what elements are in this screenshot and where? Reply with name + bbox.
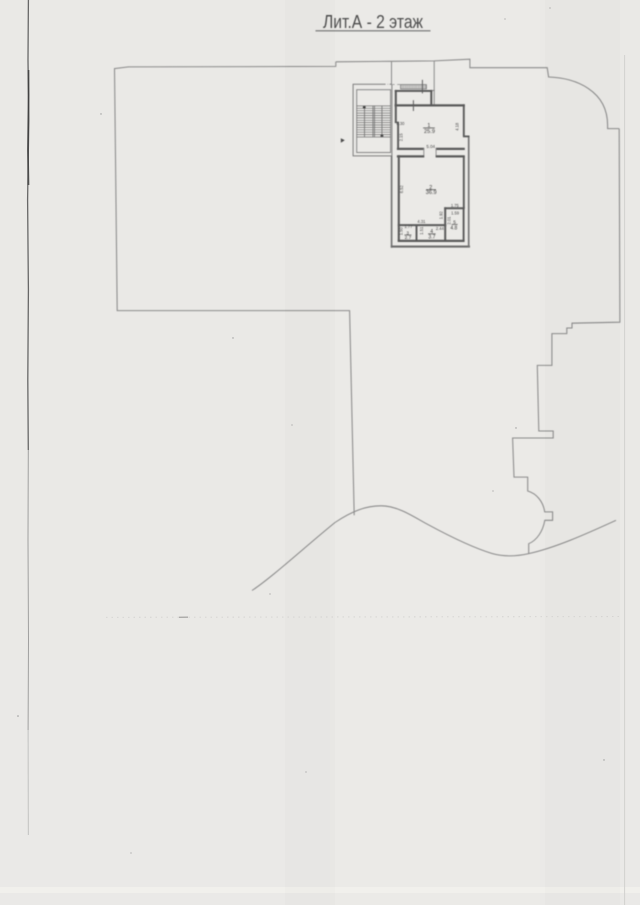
svg-text:3.7: 3.7 bbox=[428, 235, 435, 241]
svg-text:1.92: 1.92 bbox=[438, 211, 443, 220]
svg-text:0.30: 0.30 bbox=[396, 121, 405, 126]
svg-text:1.51: 1.51 bbox=[419, 226, 424, 235]
svg-text:1.50: 1.50 bbox=[399, 227, 404, 236]
svg-text:6.52: 6.52 bbox=[399, 185, 404, 194]
svg-text:4.31: 4.31 bbox=[417, 219, 426, 224]
svg-text:2.01: 2.01 bbox=[446, 216, 451, 225]
svg-text:2.15: 2.15 bbox=[398, 133, 403, 142]
svg-text:2.44: 2.44 bbox=[436, 226, 445, 231]
svg-text:Лит.А - 2 этаж: Лит.А - 2 этаж bbox=[323, 11, 424, 32]
svg-text:25.9: 25.9 bbox=[424, 129, 435, 135]
svg-text:36.9: 36.9 bbox=[426, 190, 437, 196]
svg-text:1.77: 1.77 bbox=[404, 224, 413, 229]
svg-text:2.7: 2.7 bbox=[405, 235, 412, 241]
svg-text:5.04: 5.04 bbox=[426, 144, 435, 149]
svg-text:3: 3 bbox=[406, 230, 409, 235]
svg-text:1.75: 1.75 bbox=[451, 203, 460, 208]
svg-text:4.8: 4.8 bbox=[450, 226, 457, 232]
svg-text:1.59: 1.59 bbox=[451, 210, 460, 215]
svg-text:4.18: 4.18 bbox=[454, 122, 459, 131]
